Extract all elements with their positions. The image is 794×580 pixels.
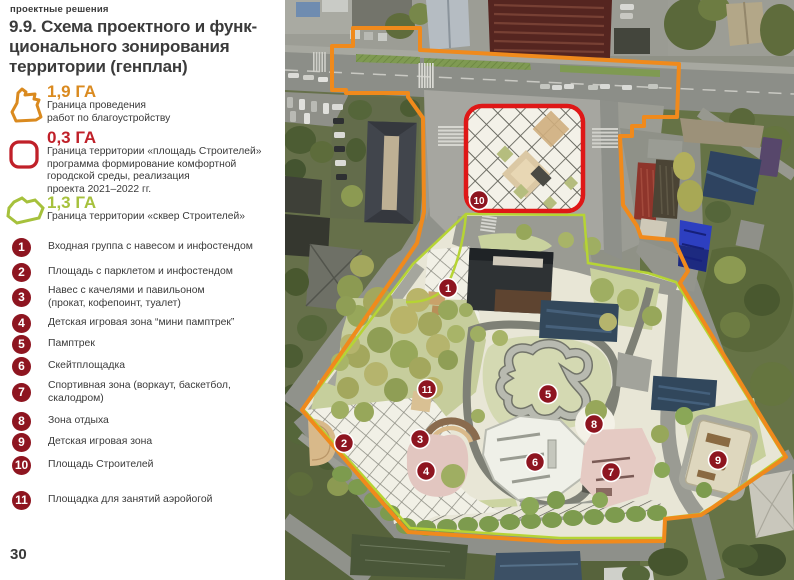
svg-text:7: 7 — [608, 467, 614, 479]
svg-text:5: 5 — [545, 389, 551, 401]
svg-text:2: 2 — [341, 438, 347, 450]
svg-text:1: 1 — [445, 283, 451, 295]
svg-text:6: 6 — [532, 457, 538, 469]
svg-text:4: 4 — [423, 466, 430, 478]
svg-text:8: 8 — [591, 419, 597, 431]
svg-text:11: 11 — [422, 385, 433, 396]
svg-text:3: 3 — [417, 434, 423, 446]
svg-text:10: 10 — [473, 196, 485, 207]
svg-text:9: 9 — [715, 455, 721, 467]
